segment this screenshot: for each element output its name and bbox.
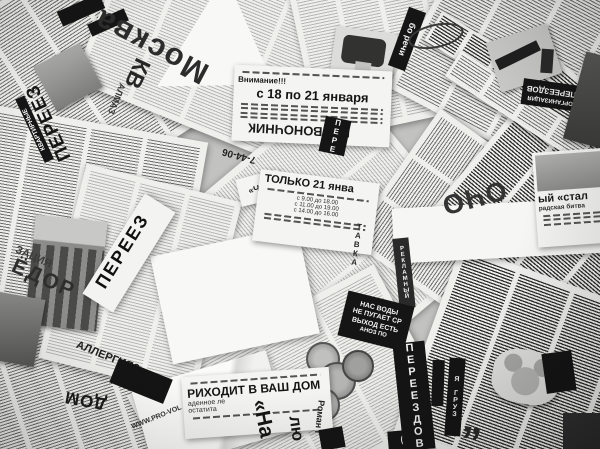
revolver-grip xyxy=(540,49,554,74)
strip-text: РЕКЛАМНЫЙ xyxy=(398,246,411,300)
newspaper-collage-photo: Москва КВ АЛМАЗ КВАРТИРНЫЕ ПЕРЕЕЗ ЗАЦИЯ … xyxy=(0,0,600,449)
pere-text: ПЕРЕ xyxy=(327,117,344,154)
coin-photo xyxy=(342,350,374,382)
article-photo xyxy=(535,151,600,192)
pereezdov-text: ПЕРЕЕЗДОВ xyxy=(402,342,426,449)
lyu-headline: лю xyxy=(286,415,306,442)
ya-gruz-text: Я ГРУЗ xyxy=(449,376,460,418)
small-ad-chip xyxy=(541,350,576,394)
stalingrad-article: ый «стал радская битва xyxy=(532,147,600,247)
dark-bar xyxy=(318,426,345,449)
dark-strip xyxy=(431,360,445,406)
dark-corner xyxy=(563,413,600,449)
revolver-barrel xyxy=(494,40,540,70)
